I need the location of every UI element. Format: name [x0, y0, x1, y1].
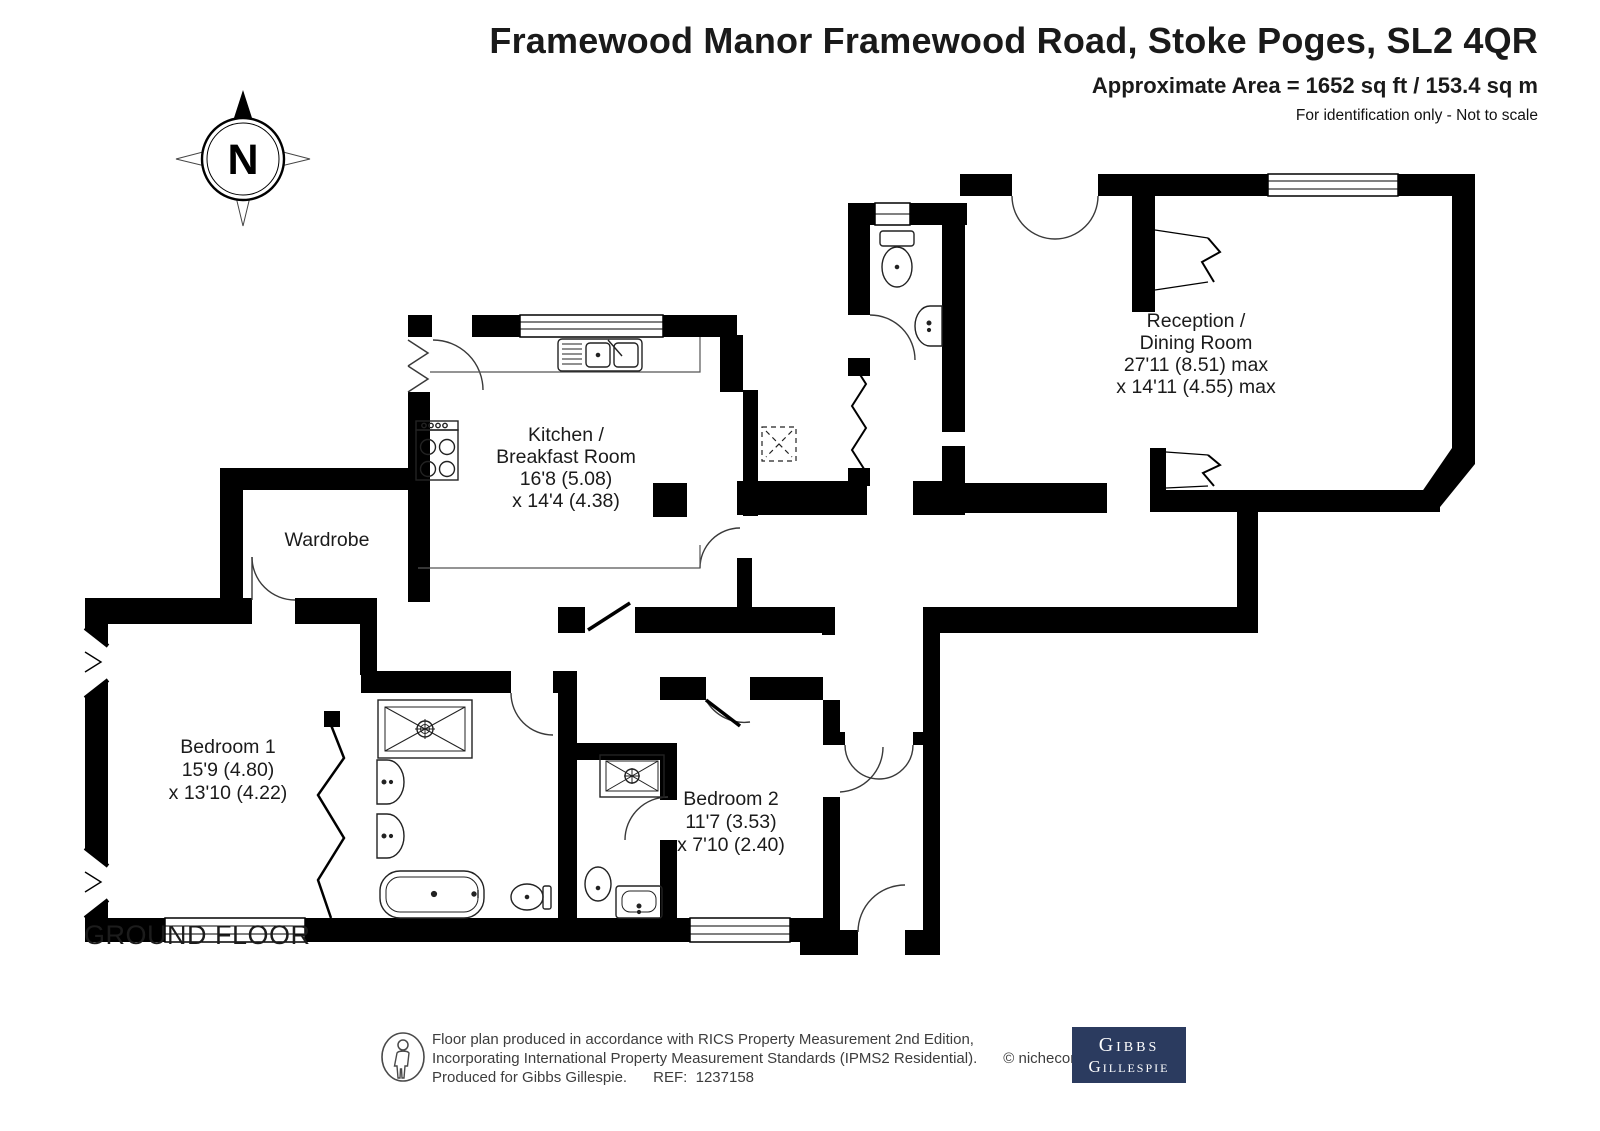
footer-line1: Floor plan produced in accordance with R…	[432, 1030, 1124, 1049]
bedroom2-dim2: x 7'10 (2.40)	[677, 834, 785, 856]
reception-dim1: 27'11 (8.51) max	[1124, 354, 1269, 376]
bedroom2-dim1: 11'7 (3.53)	[685, 811, 776, 833]
windows	[165, 174, 1398, 942]
shower-fixture	[378, 700, 472, 758]
footer-ref: REF: 1237158	[653, 1069, 754, 1086]
kitchen-name2: Breakfast Room	[496, 446, 636, 468]
toilet-fixture	[880, 231, 914, 287]
reception-dim2: x 14'11 (4.55) max	[1116, 376, 1276, 398]
sink-fixture	[558, 339, 642, 371]
compass-north-label: N	[227, 136, 258, 184]
basin-fixture	[915, 306, 942, 346]
kitchen-dim2: x 14'4 (4.38)	[512, 490, 620, 512]
bedroom1-dim1: 15'9 (4.80)	[182, 759, 275, 781]
room-label-bedroom2: Bedroom 2 11'7 (3.53) x 7'10 (2.40)	[677, 788, 785, 856]
room-label-kitchen: Kitchen / Breakfast Room 16'8 (5.08) x 1…	[496, 424, 636, 512]
footer-line3-text: Produced for Gibbs Gillespie.	[432, 1069, 627, 1086]
footer-line3: Produced for Gibbs Gillespie.REF: 123715…	[432, 1068, 1124, 1087]
room-label-bedroom1: Bedroom 1 15'9 (4.80) x 13'10 (4.22)	[169, 736, 288, 804]
bathtub-fixture	[380, 871, 484, 918]
kitchen-dim1: 16'8 (5.08)	[520, 468, 613, 490]
bedroom1-dim2: x 13'10 (4.22)	[169, 782, 288, 804]
person-icon	[380, 1032, 426, 1082]
gibbs-gillespie-logo: Gibbs Gillespie	[1072, 1027, 1186, 1083]
logo-line2: Gillespie	[1072, 1057, 1186, 1077]
room-label-reception: Reception / Dining Room 27'11 (8.51) max…	[1116, 310, 1276, 398]
room-label-wardrobe: Wardrobe	[285, 529, 370, 551]
reception-name2: Dining Room	[1140, 332, 1253, 354]
kitchen-name: Kitchen /	[528, 424, 604, 446]
shower-fixture	[600, 755, 664, 797]
floor-plan: N	[0, 0, 1600, 1131]
wardrobe-name: Wardrobe	[285, 529, 370, 551]
footer-disclaimer: Floor plan produced in accordance with R…	[432, 1030, 1124, 1087]
reception-name: Reception /	[1147, 310, 1246, 332]
footer-line2: Incorporating International Property Mea…	[432, 1049, 1124, 1068]
doors	[252, 196, 1098, 932]
floorplan-page: { "header": { "title": "Framewood Manor …	[0, 0, 1600, 1131]
logo-line1: Gibbs	[1072, 1027, 1186, 1057]
floor-label: GROUND FLOOR	[84, 920, 311, 951]
toilet-fixture	[585, 867, 611, 901]
compass-rose-icon: N	[176, 90, 310, 226]
bedroom2-name: Bedroom 2	[683, 788, 778, 810]
void-cupboard	[762, 427, 796, 461]
basin-fixture	[616, 886, 662, 918]
basin-fixture	[377, 760, 404, 858]
toilet-fixture	[511, 884, 551, 910]
bedroom1-name: Bedroom 1	[180, 736, 275, 758]
footer-line2-text: Incorporating International Property Mea…	[432, 1050, 977, 1067]
